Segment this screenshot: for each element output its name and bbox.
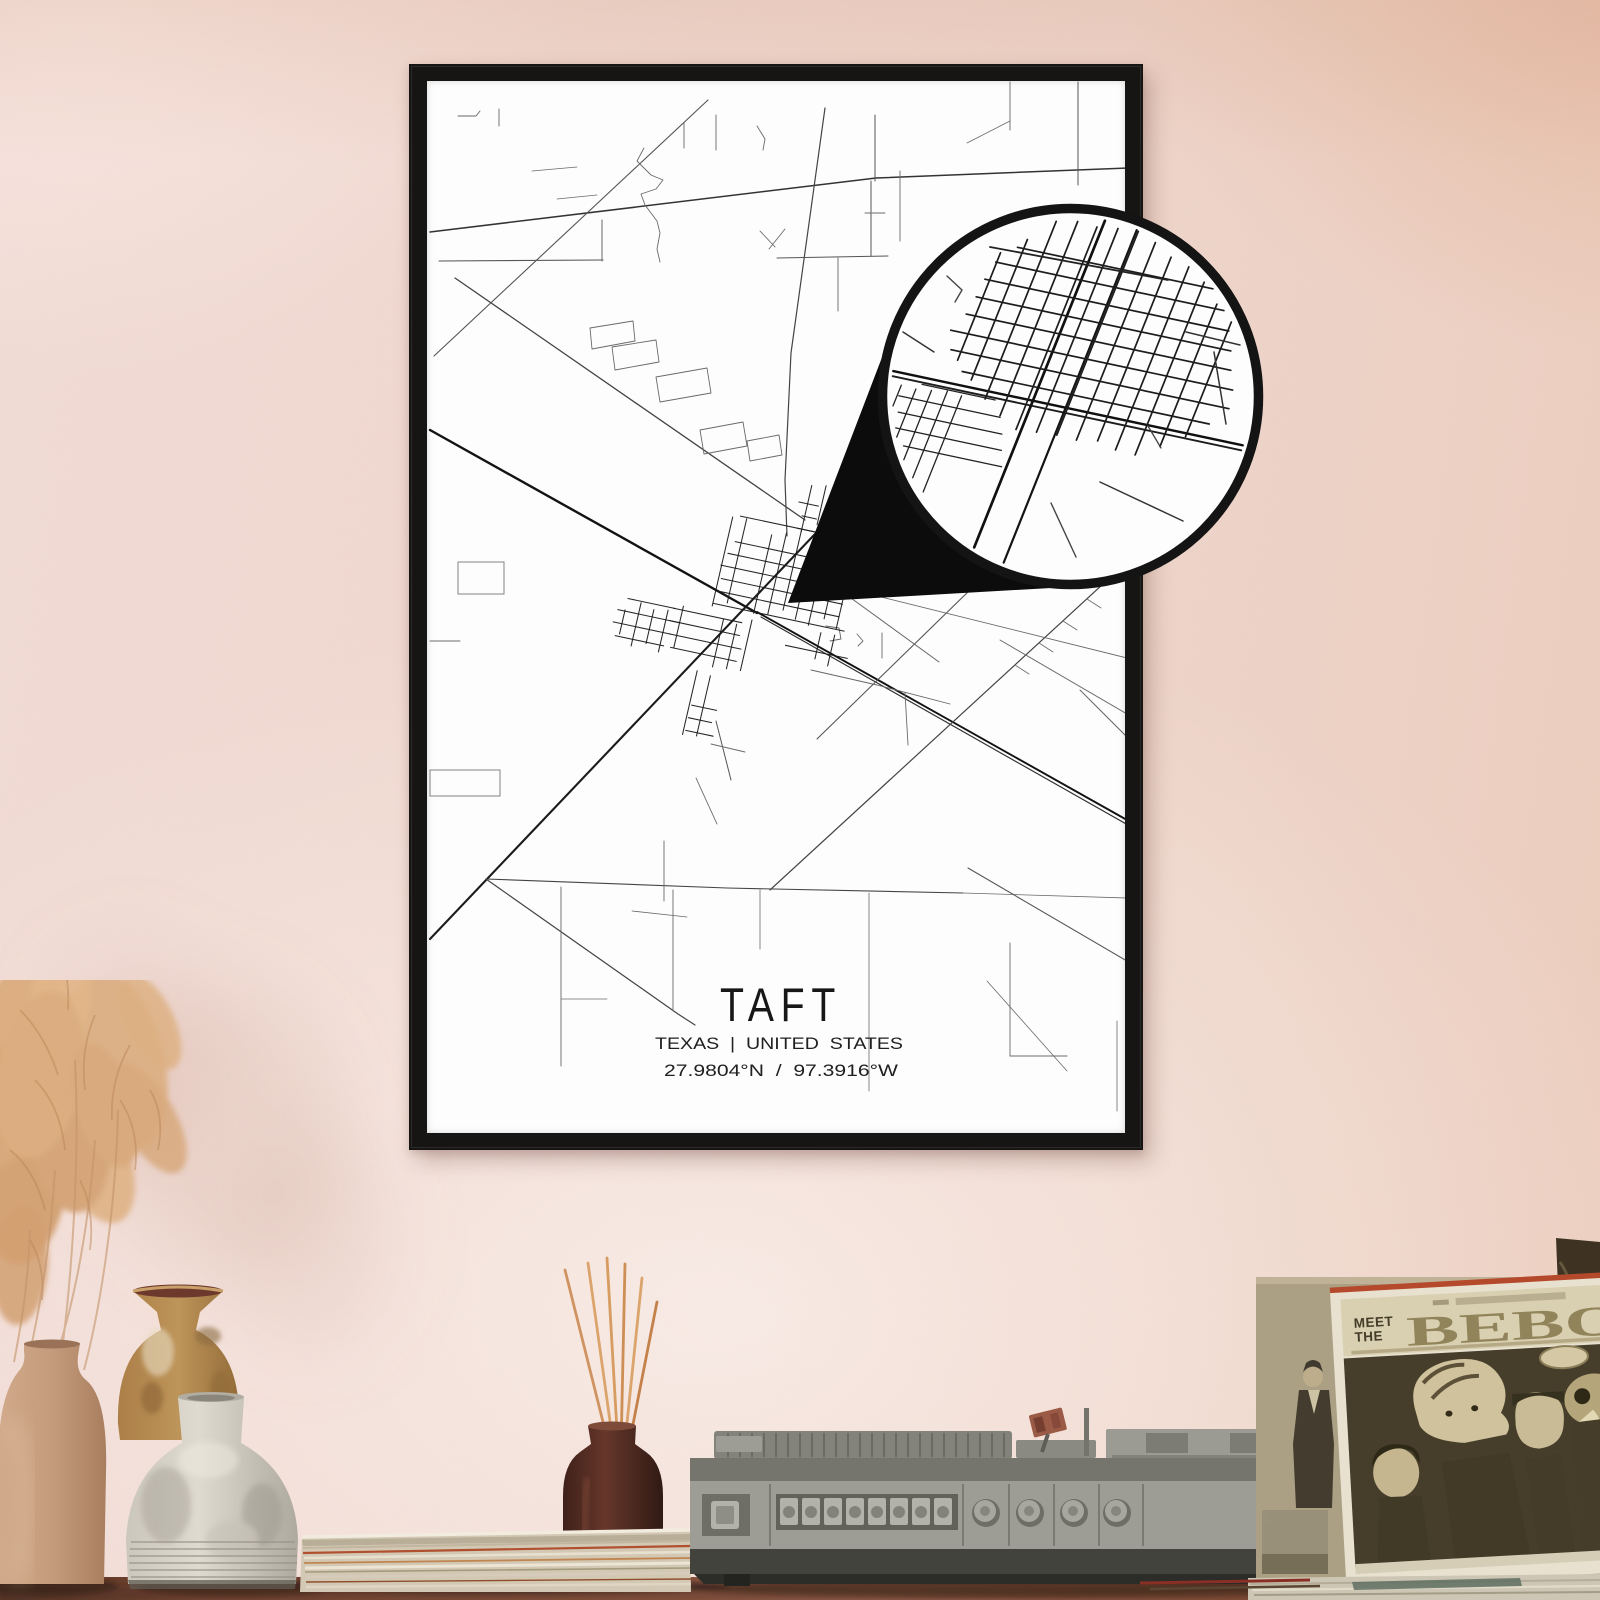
svg-text:THE: THE <box>1354 1328 1383 1345</box>
